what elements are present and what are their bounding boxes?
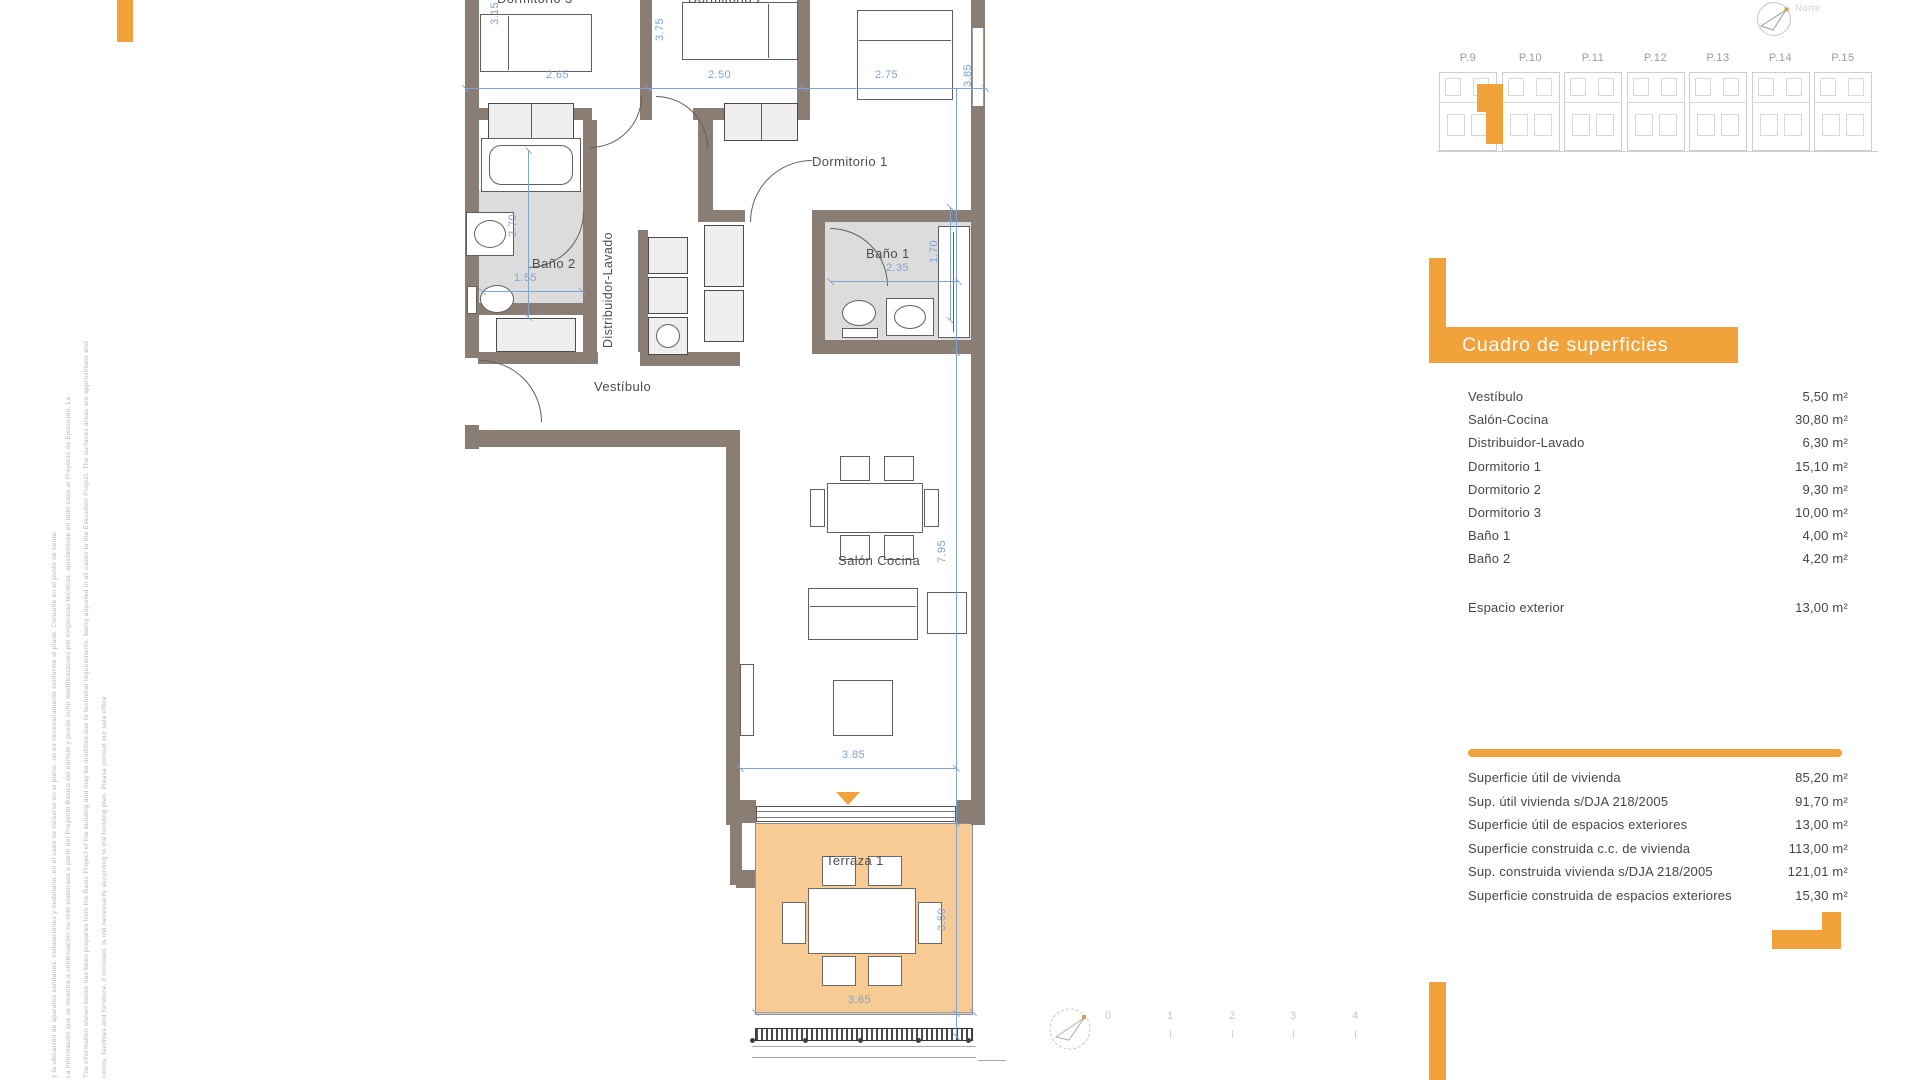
surface-row: Dormitorio 29,30 m² [1468,478,1848,501]
surface-row-exterior: Espacio exterior 13,00 m² [1468,596,1848,619]
keyplan-highlight [1486,112,1503,144]
door-arc [480,360,542,422]
room-label: Dormitorio 1 [812,154,888,169]
furniture-line [859,40,951,41]
keyplan-floor-line [1814,102,1872,103]
keyplan-room [1661,78,1677,96]
keyplan-room [1760,114,1778,136]
summary-row: Superficie útil de espacios exteriores13… [1468,813,1848,836]
keyplan-room [1570,78,1586,96]
furniture [810,489,825,527]
wall [640,108,652,120]
keyplan-unit-label: P.14 [1750,52,1812,64]
north-label: Norte [1795,3,1821,14]
summary-value: 85,20 m² [1795,770,1848,785]
wall [638,230,648,352]
furniture [938,226,970,338]
scale-tick [1293,1030,1294,1038]
terrace-furniture [782,902,806,944]
disclaimer-column: y la ubicación de aparatos sanitarios, i… [50,2,61,1078]
dimension-label: 3.85 [842,749,865,761]
furniture-line [768,4,769,58]
keyplan-unit-label: P.15 [1812,52,1874,64]
north-compass-icon [1752,1,1798,43]
wall [797,0,810,108]
terrace-entry-marker [836,792,860,805]
furniture-line [508,16,509,70]
summary-value: 91,70 m² [1795,794,1848,809]
accent-topleft-bar [117,0,133,42]
closet-divider [531,103,532,143]
accent-bottom-bar [1429,982,1446,1080]
furniture [924,489,939,527]
keyplan-room [1447,114,1465,136]
surface-label: Distribuidor-Lavado [1468,435,1585,450]
surface-value: 9,30 m² [1803,482,1848,497]
bathtub-inner [489,145,573,185]
room-label: Dormitorio 3 [497,0,573,6]
railing-post [803,1038,808,1043]
dimension-label: 2.35 [886,262,909,274]
dimension-label: 2.75 [875,69,898,81]
keyplan-room [1758,78,1774,96]
keyplan-unit-label: P.11 [1562,52,1624,64]
furniture [833,680,893,736]
terrace-furniture [822,956,856,986]
surfaces-title: Cuadro de superficies [1462,334,1669,356]
keyplan-room [1510,114,1528,136]
keyplan-room [1598,78,1614,96]
dimension-line [956,88,957,1038]
surface-row: Baño 24,20 m² [1468,547,1848,570]
dimension-label: 3.65 [848,994,871,1006]
dimension-label: 7.95 [936,540,948,563]
summary-label: Superficie construida de espacios exteri… [1468,888,1732,903]
railing-post [966,1038,971,1043]
dimension-line [528,150,529,317]
dimension-line [755,1012,973,1013]
summary-row: Sup. construida vivienda s/DJA 218/20051… [1468,860,1848,883]
surface-row: Vestíbulo5,50 m² [1468,385,1848,408]
wall [698,210,745,222]
door-arc [656,96,708,148]
summary-row: Sup. útil vivienda s/DJA 218/200591,70 m… [1468,790,1848,813]
keyplan-room [1723,78,1739,96]
wall [956,800,984,823]
furniture [857,10,953,100]
keyplan-unit-label: P.12 [1625,52,1687,64]
dimension-label: 3.85 [962,64,974,87]
furniture [842,328,878,338]
keyplan-room [1786,78,1802,96]
dimension-line [465,88,985,89]
closet [648,277,688,314]
fixture [474,220,506,248]
surface-label: Dormitorio 1 [1468,459,1541,474]
dimension-label: 2.65 [546,69,569,81]
furniture-line [810,606,916,607]
furniture [884,456,914,481]
keyplan-room [1635,114,1653,136]
terrace-furniture [808,888,916,954]
fixture [842,300,876,326]
summary-label: Superficie construida c.c. de vivienda [1468,841,1690,856]
summary-label: Superficie útil de vivienda [1468,770,1621,785]
dimension-label: 3.75 [654,18,666,41]
room-label: Salón Cocina [838,553,920,568]
surfaces-title-band: Cuadro de superficies [1446,327,1738,363]
surface-label: Espacio exterior [1468,600,1564,615]
keyplan-room [1508,78,1524,96]
closet [704,225,744,287]
wall [812,210,971,222]
fixture [480,285,514,313]
surface-value: 13,00 m² [1795,600,1848,615]
furniture [808,588,918,640]
keyplan-room [1572,114,1590,136]
disclaimer-column: The information shown below has been pre… [82,2,93,1078]
door-arc [590,96,642,148]
wall [465,430,740,447]
keyplan-baseline [1437,151,1878,152]
surface-label: Baño 2 [1468,551,1510,566]
scale-number: 0 [1098,1010,1118,1022]
summary-value: 113,00 m² [1789,841,1848,856]
furniture [682,2,798,60]
keyplan-room [1697,114,1715,136]
furniture [927,592,967,634]
floorplan-sheet: Cuadro de superficies y la ubicación de … [0,0,1920,1080]
disclaimer-column: La información que se muestra a continua… [64,2,75,1078]
furniture [827,483,923,533]
surface-row: Baño 14,00 m² [1468,524,1848,547]
room-label: Dormitorio 2 [688,0,764,6]
surface-label: Salón-Cocina [1468,412,1548,427]
railing-post [750,1038,755,1043]
dimension-label: 2.50 [708,69,731,81]
keyplan-floor-line [1502,102,1560,103]
surface-label: Dormitorio 2 [1468,482,1541,497]
scale-number: 3 [1283,1010,1303,1022]
room-label: Baño 1 [866,246,910,261]
keyplan-room [1822,114,1840,136]
wall [726,447,740,825]
keyplan-room [1659,114,1677,136]
scale-tick [1170,1030,1171,1038]
railing-post [916,1038,921,1043]
closet-divider [761,103,762,141]
terrace-furniture [868,956,902,986]
keyplan-highlight [1477,84,1503,112]
keyplan-unit-label: P.10 [1500,52,1562,64]
keyplan-unit-label: P.13 [1687,52,1749,64]
disclaimer-column: rooms, facilities and furniture, if incl… [100,2,111,1078]
keyplan-floor-line [1627,102,1685,103]
dimension-line [830,281,958,282]
scale-number: 2 [1222,1010,1242,1022]
summary-row: Superficie útil de vivienda85,20 m² [1468,766,1848,789]
keyplan-room [1445,78,1461,96]
dimension-line [482,291,582,292]
surface-value: 15,10 m² [1795,459,1848,474]
summary-label: Sup. útil vivienda s/DJA 218/2005 [1468,794,1668,809]
keyplan-room [1721,114,1739,136]
surface-row: Salón-Cocina30,80 m² [1468,408,1848,431]
sliding-door [756,806,956,822]
keyplan-room [1784,114,1802,136]
keyplan-room [1596,114,1614,136]
summary-divider-bar [1468,749,1842,757]
washer-drum [656,324,680,348]
dimension-label: 2.70 [507,214,519,237]
dimension-label: 1.55 [514,272,537,284]
furniture [467,286,477,314]
scale-compass-icon [1046,1006,1094,1054]
closet [704,290,744,342]
furniture [740,664,754,736]
surface-label: Baño 1 [1468,528,1510,543]
terrace-railing [755,1028,973,1041]
scale-number: 1 [1160,1010,1180,1022]
surface-value: 6,30 m² [1803,435,1848,450]
surface-row: Dormitorio 115,10 m² [1468,455,1848,478]
wall [812,222,825,340]
keyplan-room [1820,78,1836,96]
room-label: Distribuidor-Lavado [601,168,615,348]
dimension-label: 1.70 [928,240,940,263]
keyplan-room [1695,78,1711,96]
surface-value: 10,00 m² [1795,505,1848,520]
dimension-line [950,207,951,320]
ground-line [752,1057,976,1058]
surface-value: 30,80 m² [1795,412,1848,427]
wall [726,800,756,823]
furniture-line [953,232,954,332]
room-label: Terraza 1 [826,853,884,868]
surface-row: Distribuidor-Lavado6,30 m² [1468,431,1848,454]
ground-line [978,1060,1006,1061]
summary-label: Superficie útil de espacios exteriores [1468,817,1687,832]
ground-line [752,1046,976,1047]
summary-value: 13,00 m² [1795,817,1848,832]
fixture [894,305,926,329]
keyplan-room [1633,78,1649,96]
accent-vertical-bar [1429,258,1446,363]
room-label: Vestíbulo [594,379,651,394]
accent-bracket-vertical [1822,912,1841,949]
surface-value: 4,00 m² [1803,528,1848,543]
scale-tick [1355,1030,1356,1038]
dimension-label: 3.50 [936,908,948,931]
keyplan-floor-line [1752,102,1810,103]
keyplan-room [1846,114,1864,136]
summary-row: Superficie construida de espacios exteri… [1468,884,1848,907]
scale-tick [1232,1030,1233,1038]
closet [648,237,688,274]
keyplan-room [1534,114,1552,136]
keyplan-room [1536,78,1552,96]
keyplan-room [1848,78,1864,96]
summary-label: Sup. construida vivienda s/DJA 218/2005 [1468,864,1713,879]
surface-row: Dormitorio 310,00 m² [1468,501,1848,524]
surface-label: Dormitorio 3 [1468,505,1541,520]
closet [496,318,576,352]
surface-value: 4,20 m² [1803,551,1848,566]
wall [812,340,971,354]
dimension-line [740,768,956,769]
summary-value: 121,01 m² [1788,864,1848,879]
door-arc [750,160,812,222]
keyplan-unit-label: P.9 [1437,52,1499,64]
summary-value: 15,30 m² [1795,888,1848,903]
keyplan-floor-line [1689,102,1747,103]
wall [736,870,755,888]
railing-post [858,1038,863,1043]
wall [971,0,985,825]
surface-value: 5,50 m² [1803,389,1848,404]
summary-row: Superficie construida c.c. de vivienda11… [1468,837,1848,860]
room-label: Baño 2 [532,256,576,271]
surface-label: Vestíbulo [1468,389,1523,404]
keyplan-floor-line [1564,102,1622,103]
furniture [840,456,870,481]
wall [583,120,597,352]
scale-number: 4 [1345,1010,1365,1022]
